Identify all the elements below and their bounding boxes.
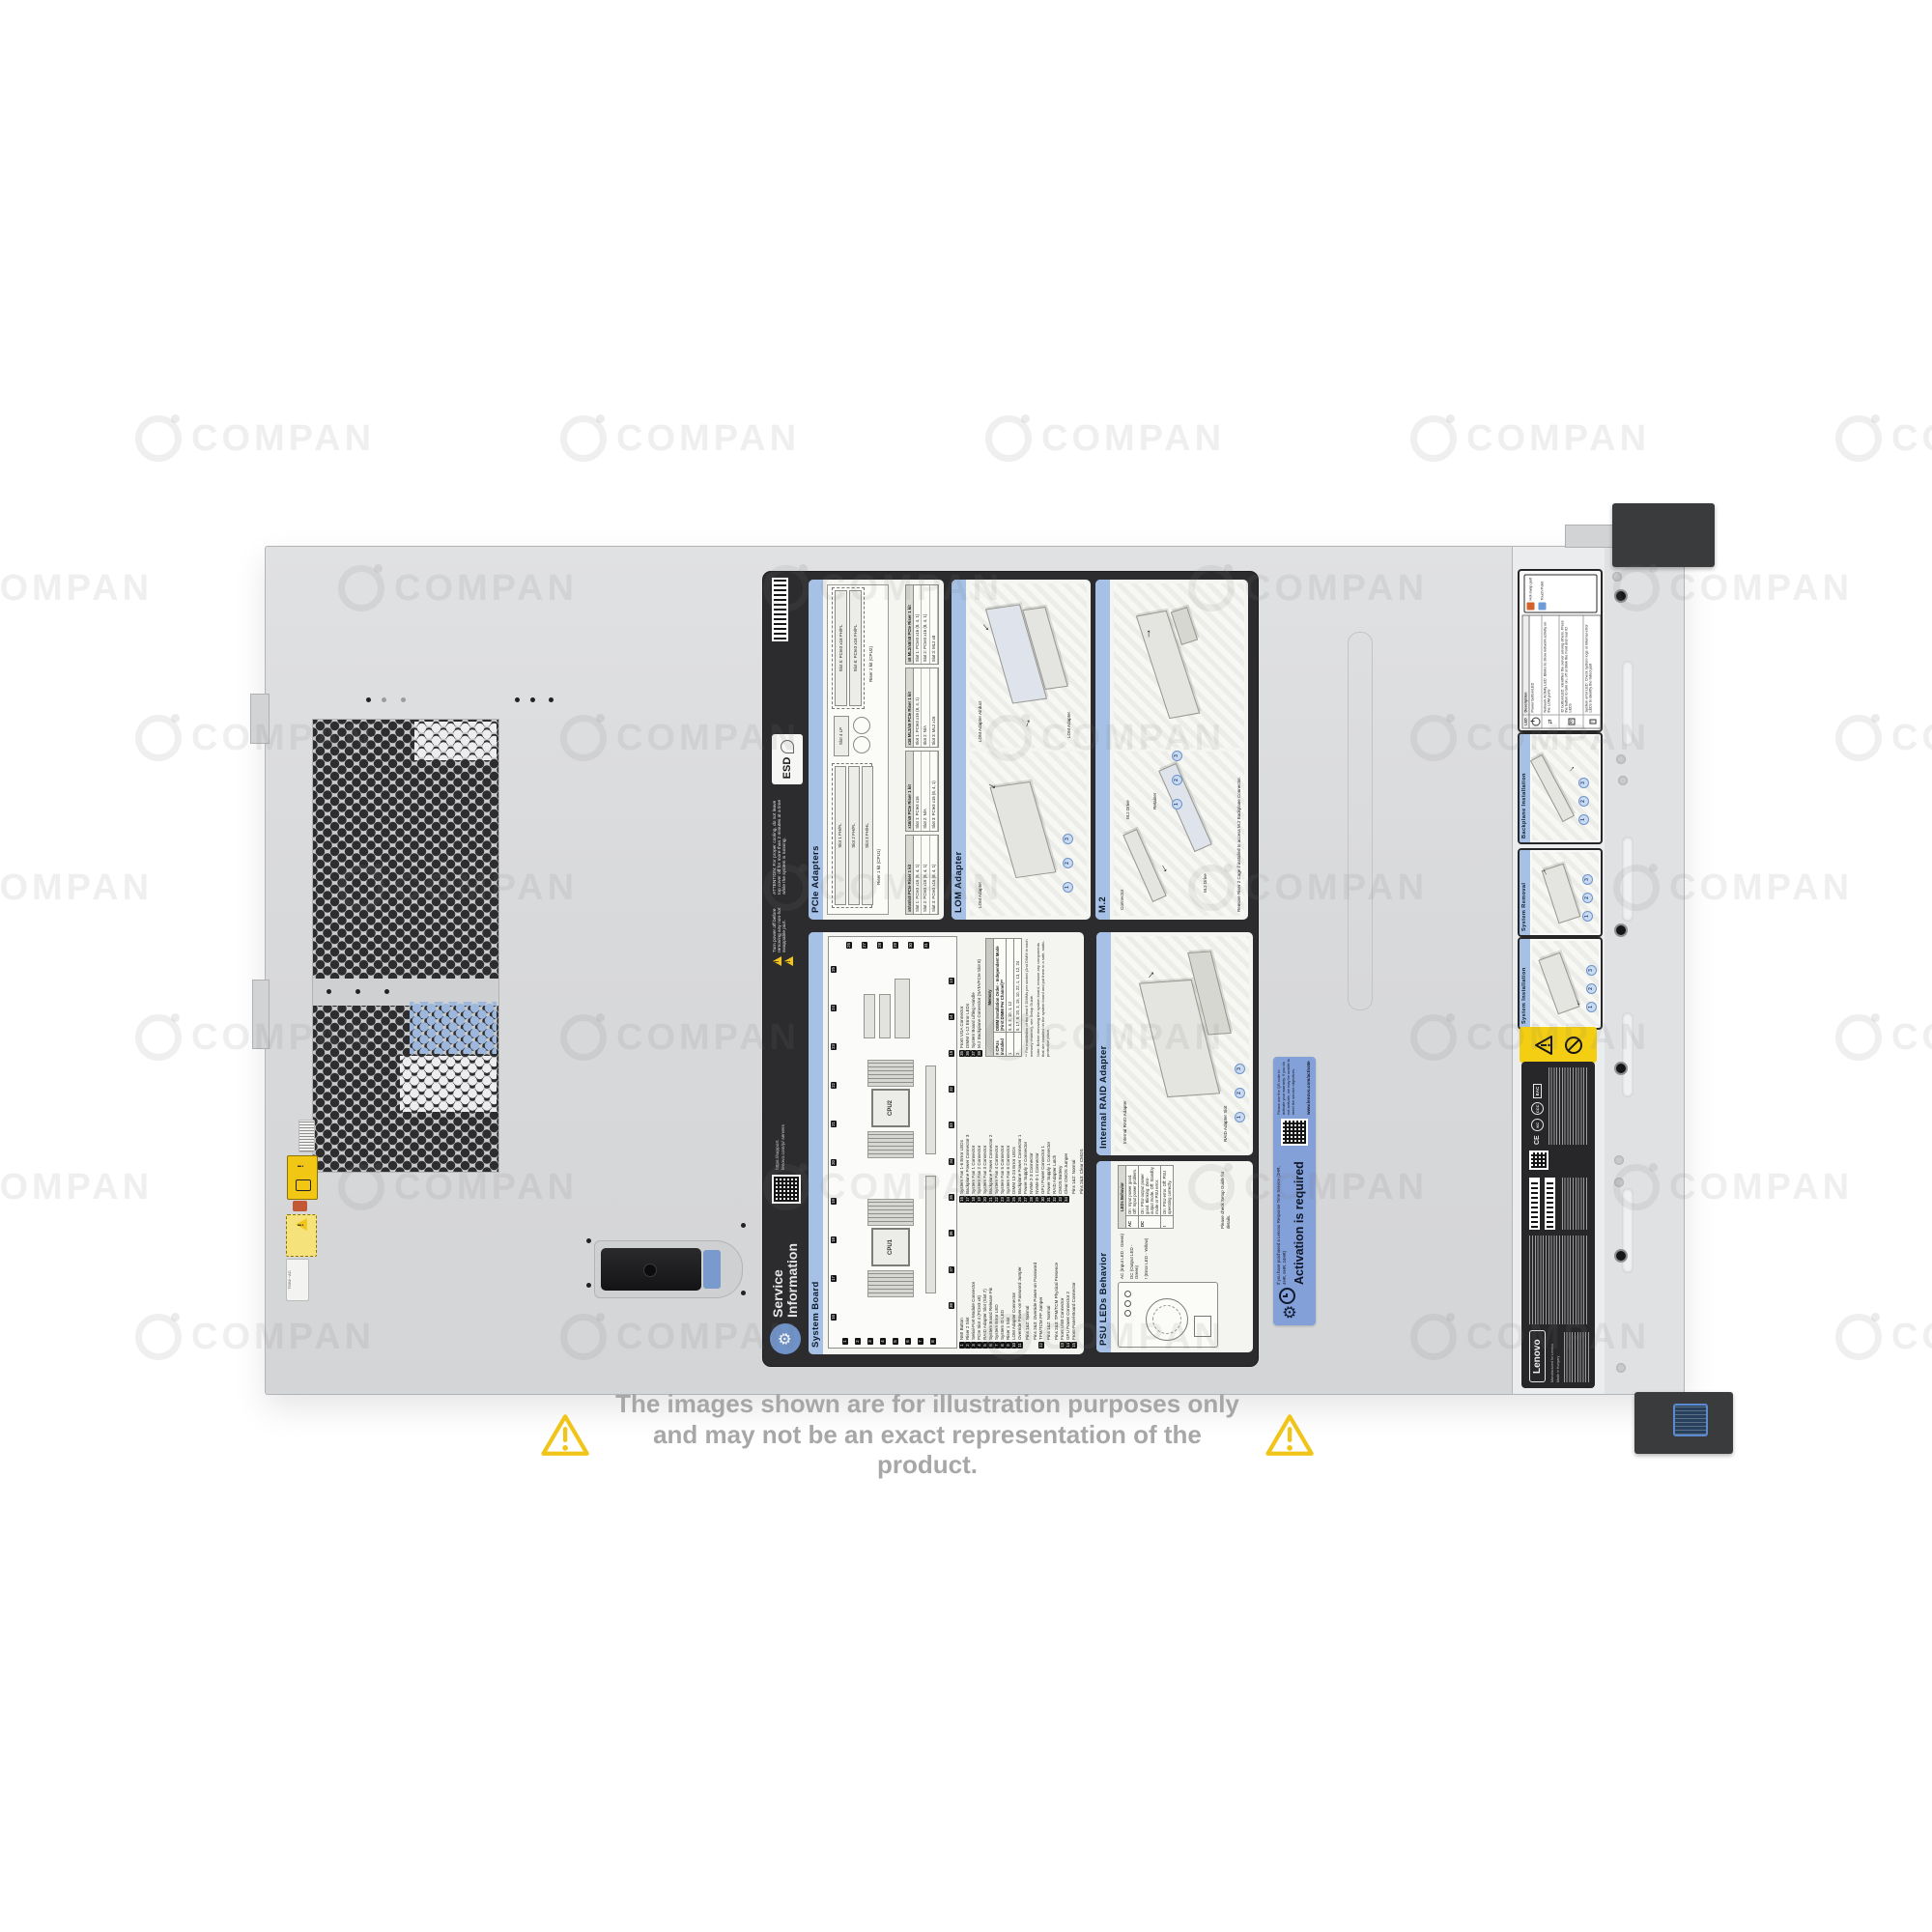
psu-warning-label-2 (286, 1214, 317, 1257)
red-tag (293, 1201, 307, 1211)
watermark-text: COMPAN (1669, 1167, 1853, 1208)
watermark-text: COMPAN (0, 568, 153, 610)
product-photo-canvas: { "watermark": { "text": "COMPAN" }, "di… (0, 0, 1932, 1932)
watermark-logo-icon (1835, 1314, 1882, 1360)
m2-retainer-label: Retainer (1152, 793, 1157, 810)
error-led-icon: ! (1589, 719, 1596, 724)
memory-row: 15, 8, 3, 10, 1, 12 (1006, 939, 1013, 1056)
eac-mark: EAC (1533, 1084, 1542, 1099)
watermark-logo-icon (560, 415, 607, 462)
made-line1: Manufactured for Lenovo (1550, 1344, 1554, 1382)
psu-rating-text: 750W ~AC (287, 1260, 308, 1300)
pcie-card: PCIe Adapters Slot 1 FH/FL Slot 2 FH/FL … (809, 580, 944, 920)
watermark-text: COMPAN (1669, 568, 1853, 610)
step-dot: 3 (1172, 751, 1182, 761)
hot-swap-color-icon (1526, 602, 1534, 610)
pcie-table-1: x8/x8/x8 PCIe Riser 1 kit Slot 1: PCIe3 … (905, 835, 939, 915)
legend-item: 15Front-Panel-Board Connector (1071, 1207, 1077, 1349)
watermark-text: COMPAN (1669, 867, 1853, 909)
m2-drive-label: M.2 Drive (1203, 873, 1207, 893)
plug-icon (296, 1179, 311, 1191)
screw[interactable] (1616, 1251, 1626, 1261)
backplane-diagram: → 123 (1532, 736, 1599, 840)
step-dot: 1 (1578, 814, 1589, 825)
lom-diagram-right: LOM Adapter Airduct LOM Adapter → → (970, 583, 1087, 748)
board-callout: 37 (949, 1266, 954, 1273)
watermark-text: COMPAN (1891, 718, 1932, 759)
board-connector (864, 994, 875, 1038)
m2-diagram-right: → (1114, 583, 1244, 748)
dimm-bank (867, 1270, 914, 1297)
dimm-bank (867, 1060, 914, 1087)
led-row-desc: System error LED: Check system logs or i… (1583, 615, 1602, 714)
board-connector (879, 994, 891, 1038)
led-col-header: LED (1522, 714, 1528, 727)
psu-dc-desc: On: PSU output power good. Blinking: Zer… (1139, 1166, 1160, 1215)
led-table: LEDDescription Power button/LED ⇄Network… (1521, 614, 1601, 728)
step-dot: 2 (1063, 858, 1073, 868)
clock-icon (1279, 1288, 1295, 1304)
board-callout: 1 (842, 1338, 848, 1345)
psu-led-label: AC (Input LED - Green) (1120, 1231, 1125, 1279)
psu-inlet-icon (1194, 1316, 1211, 1337)
pcie-table-row: Slot 1: PCIe3 x16 (8, 4, 1) (914, 668, 922, 747)
board-callout: 8 (930, 1338, 936, 1345)
system-shape (1538, 952, 1579, 1015)
desc-col-header: Description (1522, 690, 1528, 714)
board-callout: 33 (949, 1122, 954, 1128)
warning-triangle-icon (541, 1412, 589, 1458)
latch-touch-point[interactable] (703, 1250, 721, 1289)
riser1-caption: Riser 1 kit (CPU1) (876, 849, 881, 885)
psu-handle-tab (252, 980, 270, 1049)
network-icon: ⇄ (1542, 714, 1558, 727)
esd-sticker: ESD (772, 734, 803, 784)
board-connector (895, 979, 910, 1038)
rack-latch-bottom[interactable] (1634, 1392, 1733, 1454)
watermark-text: COMPAN (0, 867, 153, 909)
serial-barcode (1545, 1178, 1555, 1230)
watermark-logo-icon (1410, 415, 1457, 462)
edge-slot (1622, 661, 1634, 746)
front-edge-zone (1605, 547, 1684, 1394)
activation-content: ⚙ If you have purchased a Lenovo Respons… (1273, 1057, 1316, 1325)
system-board-note: Note: Before removing the system board, … (1036, 938, 1050, 1057)
board-callout: 21 (831, 1121, 837, 1127)
screw[interactable] (1616, 925, 1626, 935)
pcie-table-3: x16 ML2/x8 PCIe Riser 1 kit Slot 1: PCIe… (905, 668, 939, 748)
pcie-rear-diagram: Slot 1 FH/FL Slot 2 FH/FL Slot 3 FH/HL R… (827, 584, 889, 915)
raid-adapter-label: Internal RAID Adapter (1122, 1100, 1127, 1144)
cert-marks: CE KC CCC EAC (1531, 1084, 1544, 1145)
m2-card: M.2 Connector M.2 Drive Retainer M.2 Dri… (1095, 580, 1248, 920)
pcie-card-title: PCIe Adapters (809, 580, 823, 920)
watermark-item: COMPAN (0, 1164, 153, 1210)
psu-vent-grille (312, 719, 499, 1173)
watermark-item: COMPAN (0, 565, 153, 611)
electric-warning-icon (296, 1218, 307, 1231)
attention-text: ATTENTION: For proper cooling, do not le… (773, 796, 787, 895)
watermark-text: COMPAN (616, 418, 800, 460)
watermark-logo-icon (1835, 715, 1882, 761)
board-connector (925, 1065, 936, 1154)
screw[interactable] (1616, 591, 1626, 601)
label-barcode (772, 578, 788, 641)
pcie-table-row: Slot 2: N/A (922, 668, 929, 747)
step-dot: 1 (1235, 1112, 1245, 1122)
regulatory-content: Lenovo Manufactured for Lenovo Made in H… (1521, 1062, 1595, 1388)
riser1-slot2: Slot 2 FH/FL (848, 766, 860, 905)
watermark-logo-icon (135, 1314, 182, 1360)
gear-icon: ⚙ (1281, 1305, 1300, 1320)
system-installation-title: System Installation (1520, 939, 1530, 1028)
board-callout: 30 (908, 942, 914, 949)
pcie-table-row: Slot 1: PCIe3 x16 (8, 4, 1) (914, 585, 922, 664)
warning-triangle-icon (1265, 1412, 1314, 1458)
service-information-label: ⚙ Service Information https://support. l… (762, 571, 1259, 1367)
system-board-title: System Board (809, 932, 823, 1354)
m2-drive-shape (1158, 763, 1212, 852)
step-dot: 3 (1578, 778, 1589, 788)
label-title-line1: Service (771, 1243, 785, 1318)
board-callout: 26 (846, 942, 852, 949)
psu-led-table: LEDs Behavior ACOn: Input power good. Of… (1118, 1165, 1174, 1229)
lom-adapter-label: LOM Adapter (1066, 712, 1071, 738)
edge-slot (1622, 1188, 1634, 1273)
disclaimer-line2: and may not be an exact representation o… (611, 1420, 1244, 1481)
screw-hole (1616, 754, 1626, 764)
watermark-item: COMPAN (985, 415, 1225, 462)
psu-handle-tab (250, 694, 270, 744)
rack-latch-top[interactable] (1612, 503, 1715, 567)
esd-text: ESD (781, 757, 793, 780)
board-callout: 17 (831, 1275, 837, 1282)
latch-lock-screw[interactable] (643, 1264, 657, 1277)
board-callout: 25 (831, 966, 837, 973)
front-warning-label (1520, 1027, 1597, 1063)
backplane-installation-title: Backplane Installation (1520, 734, 1530, 842)
board-callout: 29 (893, 942, 898, 949)
disclaimer: The images shown are for illustration pu… (541, 1389, 1314, 1481)
system-removal-title: System Removal (1520, 850, 1530, 935)
psu-info-label (298, 1120, 315, 1152)
memory-col1-header: # CPUs Installed (994, 1032, 1006, 1056)
watermark-item: COMPAN (1835, 415, 1932, 462)
board-callout: 38 (949, 1302, 954, 1309)
pcie-table-row: Slot 2: PCIe3 x16 (8, 4, 1) (922, 585, 929, 664)
watermark-text: COMPAN (191, 418, 375, 460)
warning-triangle-icon (773, 956, 781, 966)
psu-led-label: DC (Output LED - Green) (1129, 1231, 1140, 1279)
watermark-item: COMPAN (0, 865, 153, 911)
psu-ac-desc: On: Input power good. Off: Input power p… (1126, 1166, 1138, 1215)
psu-rating-label: 750W ~AC (286, 1259, 309, 1301)
backplane-installation-card: Backplane Installation → 123 (1518, 732, 1603, 844)
m2-drive-label: M.2 Drive (1125, 800, 1130, 819)
serial-barcode (1529, 1178, 1540, 1230)
step-dot: 2 (1582, 893, 1593, 903)
board-callout: 15 (949, 1050, 954, 1057)
watermark-item: COMPAN (1835, 715, 1932, 761)
memory-row: 25, 17, 8, 20, 3, 15, 10, 22, 1, 13, 12,… (1013, 939, 1021, 1056)
psu-diagram (1118, 1282, 1218, 1348)
memory-col2-header: DIMM Installation Order - Independent Mo… (994, 939, 1006, 1032)
board-callout: 13 (949, 978, 954, 984)
board-callout: 2 (855, 1338, 861, 1345)
riser2-slot5: Slot 5: PCIe3 x16 FH/FL (835, 590, 847, 706)
raid-card: Internal RAID Adapter Internal RAID Adap… (1096, 932, 1253, 1155)
watermark-item: COMPAN (1835, 1014, 1932, 1061)
watermark-logo-icon (135, 1014, 182, 1061)
m2-connector-label: Connector (1120, 890, 1124, 910)
board-callout: 22 (831, 1082, 837, 1089)
step-dot: 1 (1172, 799, 1182, 810)
board-callout: 7 (918, 1338, 923, 1345)
power-warning-text: Turn power off before removing any non-h… (773, 896, 793, 952)
psu-leds-card: PSU LEDs Behavior A (1096, 1161, 1253, 1352)
cpu1-socket: CPU1 (871, 1228, 910, 1266)
regulatory-label: Lenovo Manufactured for Lenovo Made in H… (1521, 1062, 1595, 1388)
step-dot: 1 (1586, 1002, 1597, 1012)
support-url: https://support. lenovo.com/p/ servers (776, 1120, 787, 1170)
pcie-table-row: Slot 3: PCIe3 x16 (8, 4, 1) (930, 836, 938, 914)
pcie-table-row: Slot 1: PCIe3 x16 (8, 4, 1) (914, 836, 922, 914)
activation-sticker: ⚙ If you have purchased a Lenovo Respons… (1273, 1057, 1316, 1325)
led-row-desc: ID button/LED: Identifies the server amo… (1559, 615, 1582, 714)
watermark-logo-icon (1835, 1014, 1882, 1061)
riser1-slot3: Slot 3 FH/HL (862, 766, 873, 905)
system-installation-card: System Installation → 123 (1518, 937, 1603, 1030)
edge-slot (1622, 837, 1634, 922)
warning-triangle-icon (1534, 1035, 1553, 1056)
memory-footnote: ** For installation of the next 6 DIMMs … (1024, 938, 1034, 1057)
disclaimer-line1: The images shown are for illustration pu… (611, 1389, 1244, 1420)
fan-circle-icon (853, 736, 870, 753)
board-callout: 5 (893, 1338, 898, 1345)
system-removal-diagram: → 123 (1532, 852, 1599, 933)
board-callout: 20 (831, 1159, 837, 1166)
cover-groove (1348, 632, 1373, 1010)
vent-internal-blue-patch (410, 1002, 497, 1054)
lom-card: LOM Adapter LOM Adapter → 123 LOM Adapte… (952, 580, 1091, 920)
memory-table-title: Memory (986, 939, 993, 1056)
pcie-table-4: x8 ML2/x8/x8 PCIe Riser 1 kit Slot 1: PC… (905, 584, 939, 665)
cover-latch-recess (594, 1240, 743, 1298)
watermark-text: COMPAN (1466, 418, 1650, 460)
dimm-bank (867, 1199, 914, 1226)
psu-led-label: ! (Error LED - Yellow) (1144, 1231, 1150, 1279)
fan-circle-icon (853, 717, 870, 734)
board-callout: 24 (831, 1005, 837, 1011)
step-dot: 3 (1063, 834, 1073, 844)
board-callout: 19 (831, 1198, 837, 1205)
fine-print-block (1529, 1236, 1587, 1324)
led-row-desc: Power button/LED (1529, 680, 1541, 714)
board-callout: 23 (831, 1043, 837, 1050)
dimm-bank (867, 1131, 914, 1158)
lom-card-title: LOM Adapter (952, 580, 966, 920)
step-dot: 2 (1235, 1088, 1245, 1098)
step-dot: 2 (1578, 796, 1589, 807)
xeon-badge (1673, 1404, 1708, 1436)
riser2-caption: Riser 2 kit (CPU2) (868, 646, 873, 682)
raid-diagram: Internal RAID Adapter RAID Adapter Slot … (1115, 936, 1249, 1151)
lom-adapter-label: LOM Adapter (978, 882, 982, 908)
system-installation-diagram: → 123 (1532, 941, 1599, 1026)
cover-latch-handle[interactable] (601, 1248, 701, 1291)
watermark-item: COMPAN (1835, 1314, 1932, 1360)
riser2-slot6: Slot 6: PCIe3 x16 FH/FL (849, 590, 862, 706)
pcie-table-row: Slot 3: ML2 x16 (930, 668, 938, 747)
riser1-slot1: Slot 1 FH/FL (835, 766, 846, 905)
fine-print-block (1548, 1067, 1587, 1145)
board-callout: 6 (905, 1338, 911, 1345)
watermark-item: COMPAN (135, 415, 375, 462)
vent-highlight-patch (414, 722, 497, 760)
board-callout: 32 (949, 1086, 954, 1093)
touchpoint-key-card: Hot-swap part Touch Point (1523, 574, 1597, 612)
pcie-table-row: Slot 2: PCIe3 x16 (8, 4, 1) (922, 836, 929, 914)
board-callout: 36 (949, 1230, 954, 1236)
lenovo-logo: Lenovo (1529, 1330, 1546, 1382)
watermark-logo-icon (135, 415, 182, 462)
service-label-content: ⚙ Service Information https://support. l… (763, 572, 1258, 1366)
board-callout: 27 (862, 942, 867, 949)
board-callout: 35 (949, 1194, 954, 1201)
step-dot: 3 (1235, 1064, 1245, 1074)
board-callout: 4 (880, 1338, 886, 1345)
watermark-item: COMPAN (1410, 415, 1650, 462)
touch-point-label: Touch Point (1540, 581, 1544, 600)
screw-hole (1614, 1155, 1624, 1165)
legend-item: 38M.2 Backplane Connector (SATA/PCIe Slo… (977, 938, 982, 1057)
rail-bracket (1565, 525, 1615, 548)
no-touch-icon (1564, 1036, 1583, 1055)
legend-item: Pins 2&3: Override Power-on Password (1031, 1207, 1038, 1349)
hot-swap-label: Hot-swap part (1528, 577, 1532, 600)
board-callout: 18 (831, 1236, 837, 1243)
activation-headline: Activation is required (1293, 1140, 1306, 1285)
watermark-text: COMPAN (0, 1167, 153, 1208)
fine-print-block (1564, 1332, 1589, 1382)
warning-triangle-icon (784, 956, 793, 966)
board-callout: 16 (831, 1314, 837, 1321)
screw[interactable] (1616, 1064, 1626, 1073)
activation-subtext: If you have purchased a Lenovo Response … (1276, 1161, 1287, 1285)
board-callout: 31 (923, 942, 929, 949)
watermark-text: COMPAN (1891, 1317, 1932, 1358)
pcie-table-2: x16/x8 PCIe Riser 1 kit Slot 1: PCIe3 x1… (905, 752, 939, 832)
board-callout: 3 (867, 1338, 873, 1345)
board-callout: 28 (877, 942, 883, 949)
legend-item: Pins 1&2: Normal (1069, 1062, 1077, 1203)
electric-warning-icon (296, 1159, 308, 1173)
step-dot: 1 (1582, 911, 1593, 922)
psu-warning-label (287, 1155, 318, 1200)
m2-card-title: M.2 (1095, 580, 1110, 920)
cpu2-socket: CPU2 (871, 1089, 910, 1127)
label-top-strip: ⚙ Service Information https://support. l… (767, 578, 808, 1356)
legend-item: Pins 1&2: Normal (1023, 1207, 1031, 1349)
datamatrix-code (1529, 1151, 1548, 1170)
slot4: Slot 4 LP (834, 716, 849, 756)
pcie-table-row: Slot 1: PCIe3 x16 (914, 753, 922, 831)
pcie-table-row: Slot 2: N/A (922, 753, 929, 831)
pcie-table-row: Slot 3: PCIe3 x16 (8, 4, 1) (930, 753, 938, 831)
system-board-legend: 1NMI Button2Riser 2 Slot3Serial-Port-Mod… (959, 938, 1080, 1349)
step-dot: 1 (1063, 882, 1073, 893)
pcie-tables: x8/x8/x8 PCIe Riser 1 kit Slot 1: PCIe3 … (905, 584, 939, 915)
step-dot: 2 (1172, 775, 1182, 785)
watermark-item: COMPAN (560, 415, 800, 462)
raid-card-title: Internal RAID Adapter (1096, 932, 1111, 1155)
lom-airduct-label: LOM Adapter Airduct (978, 701, 982, 742)
m2-note: Remove Riser 2 Cage if installed to acce… (1236, 757, 1242, 912)
screw-hole (1618, 776, 1628, 785)
lom-diagram-left: LOM Adapter → 123 (970, 752, 1087, 916)
legend-item: Pins 2&3: TPM/TCM Physical Presence (1052, 1207, 1060, 1349)
psu-note: Please check Setup Guide for details. (1220, 1169, 1231, 1229)
pcie-table-row: Slot 3: ML2 x8 (930, 585, 938, 664)
made-line2: Made in Hungary (1556, 1356, 1560, 1382)
activation-qr-code (1281, 1119, 1308, 1146)
psu-fan-icon (1146, 1298, 1188, 1341)
watermark-logo-icon (1835, 415, 1882, 462)
memory-table: Memory # CPUs Installed DIMM Installatio… (985, 938, 1022, 1057)
screw-hole (1614, 1178, 1624, 1187)
board-connector (925, 1176, 936, 1293)
kc-mark: KC (1531, 1119, 1544, 1131)
power-warning-block: Turn power off before removing any non-h… (773, 896, 793, 966)
fine-print-block (1560, 1178, 1587, 1230)
edge-slot (1622, 1012, 1634, 1097)
legend-item: Pins 2&3: Clear CMOS (1077, 1062, 1084, 1203)
led-legend-content: LEDDescription Power button/LED ⇄Network… (1520, 571, 1601, 730)
psu-card-title: PSU LEDs Behavior (1096, 1161, 1111, 1352)
activation-caption: Please use the QR code to activate your … (1277, 1059, 1296, 1115)
board-callout: 14 (949, 1013, 954, 1020)
power-icon (1531, 717, 1540, 725)
service-icon: ⚙ (770, 1323, 801, 1354)
screw-hole (1612, 572, 1622, 582)
watermark-text: COMPAN (1891, 418, 1932, 460)
touch-point-color-icon (1538, 602, 1546, 610)
psu-err-desc: On: PSU error. Off: PSU operating correc… (1161, 1166, 1173, 1215)
server-chassis-top-view: 750W ~AC ⚙ Service Information (265, 546, 1685, 1395)
psu-table-title: LEDs Behavior (1119, 1166, 1125, 1228)
system-removal-card: System Removal → 123 (1518, 848, 1603, 937)
front-led-legend-card: LEDDescription Power button/LED ⇄Network… (1518, 569, 1603, 732)
legend-item: Pins 1&2: Normal (1044, 1207, 1052, 1349)
system-board-diagram: 16171819202122232425 12345678 2627282930… (828, 936, 957, 1349)
id-button-icon: ID (1568, 718, 1575, 725)
ce-mark: CE (1534, 1135, 1541, 1145)
watermark-text: COMPAN (1891, 1017, 1932, 1059)
system-board-card: System Board 16171819202122232425 123456… (809, 932, 1084, 1354)
support-qr-code (772, 1175, 801, 1204)
raid-slot-label: RAID Adapter Slot (1223, 1106, 1228, 1142)
led-row-desc: Network Activity LED: Blinks to show net… (1542, 615, 1558, 714)
watermark-logo-icon (985, 415, 1032, 462)
m2-diagram-left: Connector M.2 Drive Retainer M.2 Drive →… (1114, 752, 1244, 916)
activation-url: www.lenovo.com/activate (1306, 1059, 1311, 1115)
front-panel-strip: LEDDescription Power button/LED ⇄Network… (1512, 547, 1606, 1394)
screw-hole (1616, 1363, 1626, 1373)
step-dot: 2 (1586, 983, 1597, 994)
lom-adapter-shape (989, 781, 1056, 878)
vent-highlight-patch (400, 1056, 497, 1112)
step-dot: 3 (1582, 874, 1593, 885)
